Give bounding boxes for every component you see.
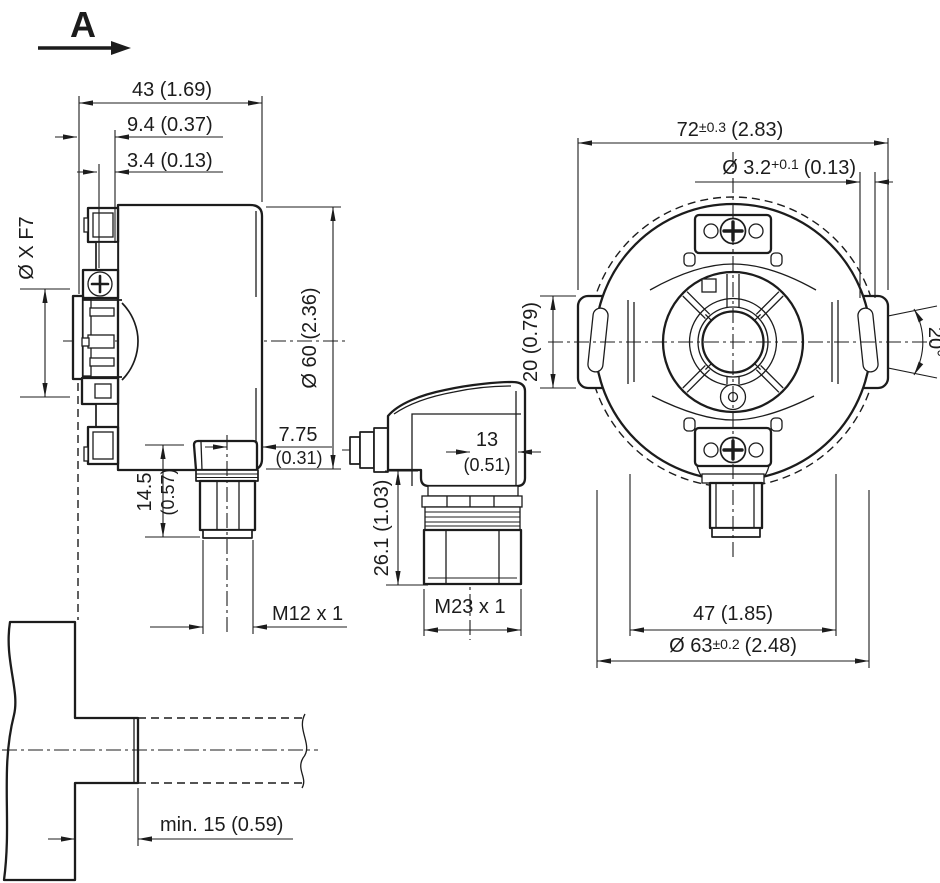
dim-angle-label: 20°	[924, 327, 940, 357]
bottom-clamp-lug	[84, 447, 88, 461]
dim-flange-label: Ø 63±0.2(2.48)	[669, 635, 797, 657]
bottom-step-block	[96, 404, 118, 427]
technical-drawing-page: A	[0, 0, 940, 883]
dim-conn-offset-mm: 7.75	[279, 424, 318, 446]
bottom-screw-block	[82, 378, 118, 404]
connector-view: 13 (0.51) 26.1 (1.03) M23 x 1	[342, 382, 541, 640]
dim-shaft-bore-label: Ø X F7	[16, 216, 38, 279]
bottom-plate-hook-left	[684, 418, 695, 431]
view-letter: A	[70, 4, 96, 45]
dim-step-label: 3.4 (0.13)	[127, 150, 213, 172]
bottom-plate-hook-right	[771, 418, 782, 431]
m23-stub-cap	[350, 437, 360, 464]
thread-m12-label: M12 x 1	[272, 603, 343, 625]
rotor-pin-block	[702, 279, 716, 292]
dim-tab-label: 20 (0.79)	[520, 302, 542, 382]
housing-outline	[118, 205, 262, 470]
dim-conn-length-in: (0.57)	[158, 468, 178, 515]
top-clamp-lug	[84, 218, 88, 232]
dim-conn-length-mm: 14.5	[134, 473, 156, 512]
encoder-dimensional-drawing: A	[0, 0, 940, 883]
mount-view: min. 15 (0.59)	[2, 622, 318, 880]
shaft-break-line	[301, 714, 307, 788]
dim-pin-hole-label: Ø 3.2+0.1(0.13)	[722, 156, 856, 179]
m23-hex-nut	[424, 530, 521, 584]
collar-rib-bottom	[90, 358, 114, 366]
m23-stub-mid	[360, 432, 374, 468]
angle-leg-bottom	[888, 368, 937, 378]
dim-depth-mm: 13	[476, 429, 498, 451]
m23-clamp-ring	[422, 496, 522, 507]
view-direction-arrow-head	[111, 41, 131, 55]
dim-overall-label: 72±0.3(2.83)	[677, 119, 784, 141]
m12-boss	[194, 441, 257, 470]
m23-collar-ring	[428, 486, 518, 496]
mounting-wall	[4, 622, 138, 880]
thread-m23-label: M23 x 1	[434, 596, 505, 618]
dim-conn-offset-in: (0.31)	[275, 448, 322, 468]
m12-front-rim	[712, 528, 760, 537]
front-view: 72±0.3(2.83) Ø 3.2+0.1(0.13) 20 (0.79) 2…	[520, 119, 940, 668]
side-view: 43 (1.69) 9.4 (0.37) 3.4 (0.13) Ø X F7 Ø…	[16, 79, 348, 634]
top-plate-hook-left	[684, 253, 695, 266]
angle-leg-top	[888, 306, 937, 316]
dim-spacing-label: 47 (1.85)	[693, 603, 773, 625]
shaft-hub	[88, 335, 114, 348]
m23-stub-base	[374, 428, 388, 472]
dim-depth-in: (0.51)	[463, 455, 510, 475]
shaft-end-pin	[82, 338, 89, 346]
dim-min-depth-label: min. 15 (0.59)	[160, 814, 283, 836]
m23-ridge-band	[425, 507, 520, 530]
view-direction-label: A	[38, 4, 131, 55]
dim-flange-offset-label: 9.4 (0.37)	[127, 114, 213, 136]
dim-height-label: 26.1 (1.03)	[371, 480, 393, 577]
dim-housing-dia-label: Ø 60 (2.36)	[299, 287, 321, 388]
collar-rib-top	[90, 308, 114, 316]
top-plate-hook-right	[771, 253, 782, 266]
dim-width-label: 43 (1.69)	[132, 79, 212, 101]
